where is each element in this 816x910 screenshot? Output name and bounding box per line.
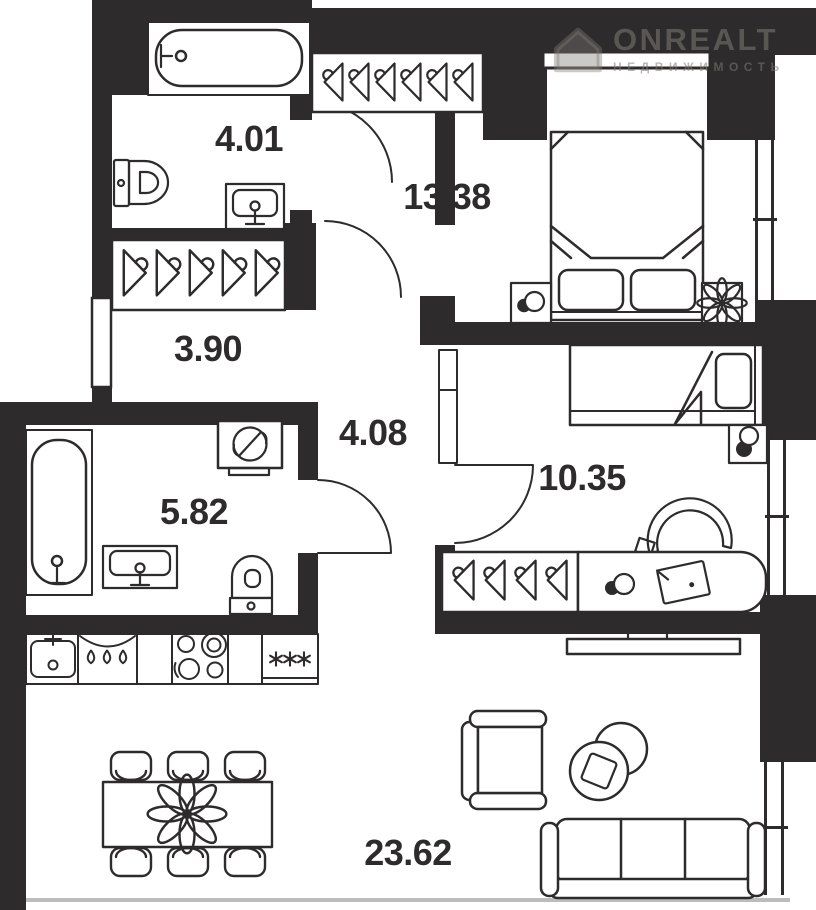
double-bed-icon (551, 132, 703, 320)
room-label-bedroom-second: 10.35 (538, 457, 626, 499)
entrance-door (92, 298, 111, 387)
wall (92, 0, 112, 297)
window-bedroom-second-right (765, 440, 789, 595)
wall-cabinet-icon (439, 350, 457, 463)
wall (298, 553, 318, 615)
armchair-icon (462, 711, 546, 809)
kitchen-counter (26, 633, 318, 684)
desk-icon (442, 552, 766, 612)
house-logo-icon (552, 24, 604, 76)
dining-table-icon (103, 752, 272, 876)
room-label-hallway: 3.90 (174, 328, 242, 370)
wall (283, 223, 316, 310)
nightstand-lamp-icon (511, 283, 551, 323)
floor-plan-screenshot: 4.01 13.38 3.90 4.08 5.82 10.35 23.62 ON… (0, 0, 816, 910)
watermark-subtitle: НЕДВИЖИМОСТЬ (613, 60, 785, 74)
wall (0, 615, 318, 634)
wall (0, 422, 26, 910)
room-label-bathroom-main: 5.82 (160, 491, 228, 533)
coffee-table-icon (570, 723, 647, 800)
washing-machine-icon (218, 421, 282, 475)
wall (435, 612, 775, 634)
bathtub-icon (148, 22, 310, 95)
wall (298, 425, 318, 480)
toilet-icon (230, 556, 272, 614)
wall (148, 0, 310, 22)
floor-plan-drawing (0, 0, 816, 910)
room-label-kitchen-living: 23.62 (364, 832, 452, 874)
tv-icon (567, 634, 740, 654)
watermark-logo: ONREALT НЕДВИЖИМОСТЬ (552, 24, 785, 76)
desk-chair-icon (635, 498, 731, 556)
bathtub-icon (26, 430, 92, 595)
nightstand-lamp-icon (729, 425, 767, 463)
room-label-bathroom-top: 4.01 (215, 118, 283, 160)
sofa-icon (541, 819, 765, 898)
room-label-bedroom-master: 13.38 (403, 176, 491, 218)
watermark-brand: ONREALT (613, 24, 785, 57)
room-label-corridor: 4.08 (339, 412, 407, 454)
wall (760, 595, 816, 762)
washbasin-icon (103, 546, 177, 588)
wardrobe-icon (312, 53, 483, 112)
toilet-icon (114, 160, 168, 206)
washbasin-icon (226, 184, 284, 229)
window-bedroom-master-right (753, 140, 777, 300)
nightstand-flower-icon (697, 278, 747, 328)
wardrobe-icon (112, 240, 285, 310)
single-bed-icon (570, 345, 763, 425)
wall (290, 210, 312, 228)
wall (483, 53, 547, 140)
